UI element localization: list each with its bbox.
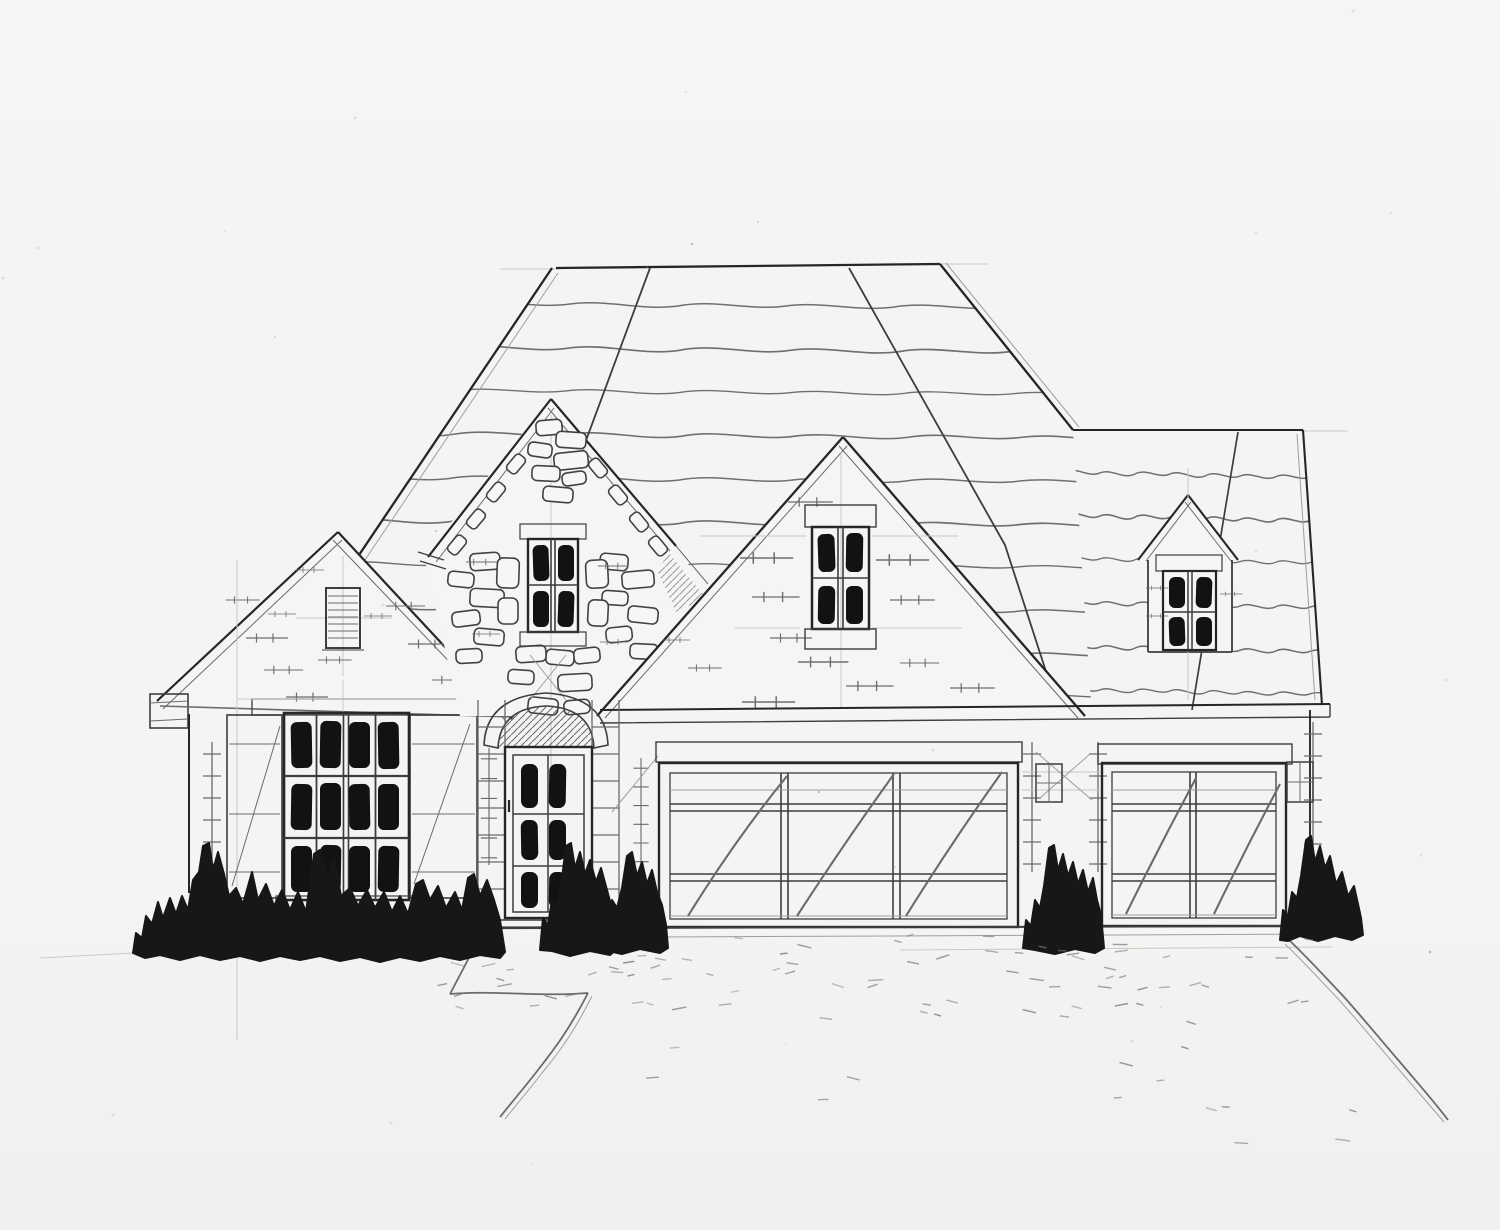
sketch-page — [0, 0, 1500, 1230]
elevation-drawing — [0, 0, 1500, 1230]
